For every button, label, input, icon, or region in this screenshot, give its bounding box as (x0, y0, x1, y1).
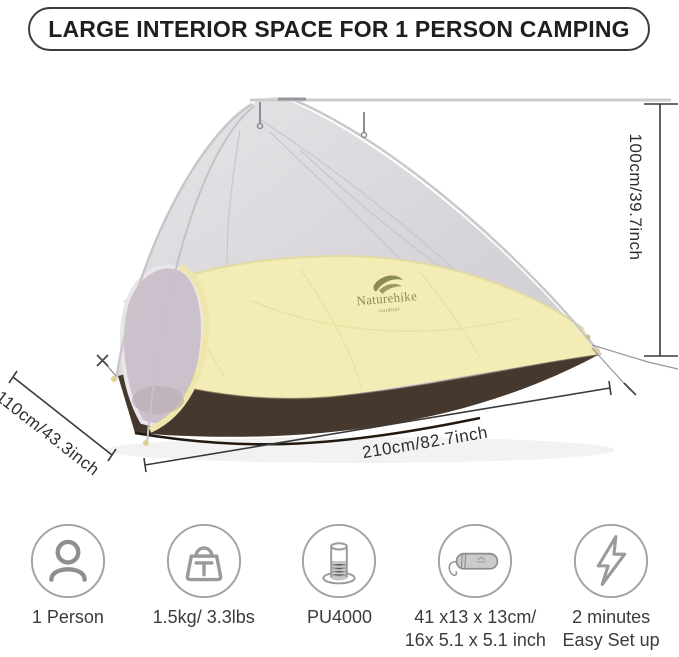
weight-icon (165, 522, 243, 600)
page-title: LARGE INTERIOR SPACE FOR 1 PERSON CAMPIN… (48, 16, 630, 43)
person-icon (29, 522, 107, 600)
feature-setup: 2 minutes Easy Set up (543, 522, 679, 657)
stake-right (624, 383, 636, 395)
waterproof-icon (300, 522, 378, 600)
feature-weight-label: 1.5kg/ 3.3lbs (153, 606, 255, 629)
width-dimension-label: 110cm/43.3inch (0, 387, 103, 479)
feature-capacity: 1 Person (0, 522, 136, 657)
stake-left (97, 355, 108, 366)
height-dimension-label: 100cm/39.7inch (626, 133, 645, 260)
feature-weight: 1.5kg/ 3.3lbs (136, 522, 272, 657)
apex-hook-right (362, 133, 367, 138)
title-banner: LARGE INTERIOR SPACE FOR 1 PERSON CAMPIN… (28, 7, 650, 51)
feature-packed-size-label-line1: 41 x13 x 13cm/ (414, 606, 536, 629)
feature-packed-size-label-line2: 16x 5.1 x 5.1 inch (405, 629, 546, 652)
tent-body: Naturehike outdoor (97, 97, 678, 446)
feature-setup-label-line1: 2 minutes (572, 606, 650, 629)
feature-waterproof: PU4000 (272, 522, 408, 657)
quick-setup-icon (572, 522, 650, 600)
door-interior-floor (132, 386, 184, 414)
feature-setup-label-line2: Easy Set up (563, 629, 660, 652)
packed-size-icon (436, 522, 514, 600)
feature-capacity-label: 1 Person (32, 606, 104, 629)
feature-row: 1 Person 1.5kg/ 3.3lbs (0, 522, 679, 657)
feature-waterproof-label: PU4000 (307, 606, 372, 629)
feature-packed-size: 41 x13 x 13cm/ 16x 5.1 x 5.1 inch (407, 522, 543, 657)
